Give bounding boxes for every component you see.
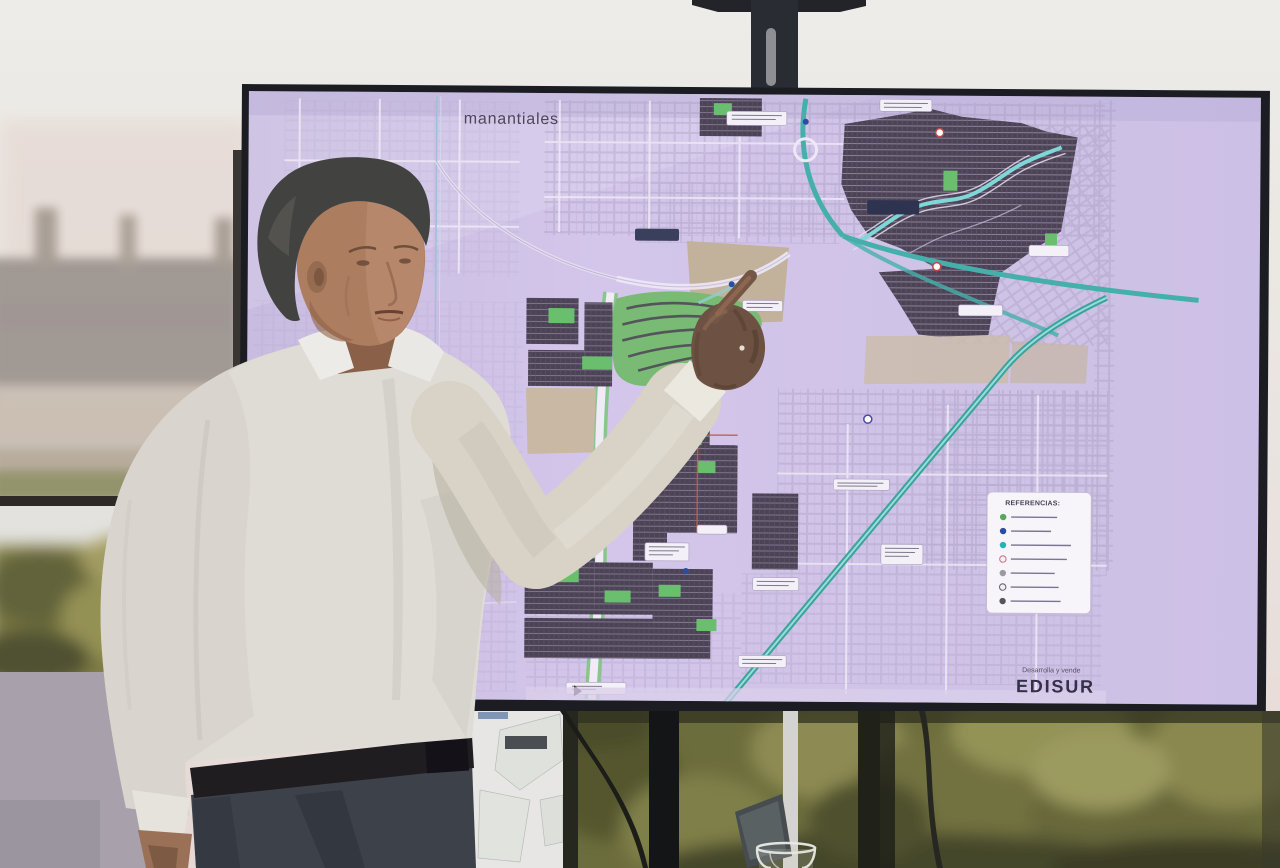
svg-text:Desarrolla y vende: Desarrolla y vende	[1022, 667, 1081, 674]
svg-text:REFERENCIAS:: REFERENCIAS:	[1005, 500, 1060, 507]
svg-text:manantiales: manantiales	[464, 110, 559, 128]
svg-text:EDISUR: EDISUR	[1016, 676, 1095, 697]
